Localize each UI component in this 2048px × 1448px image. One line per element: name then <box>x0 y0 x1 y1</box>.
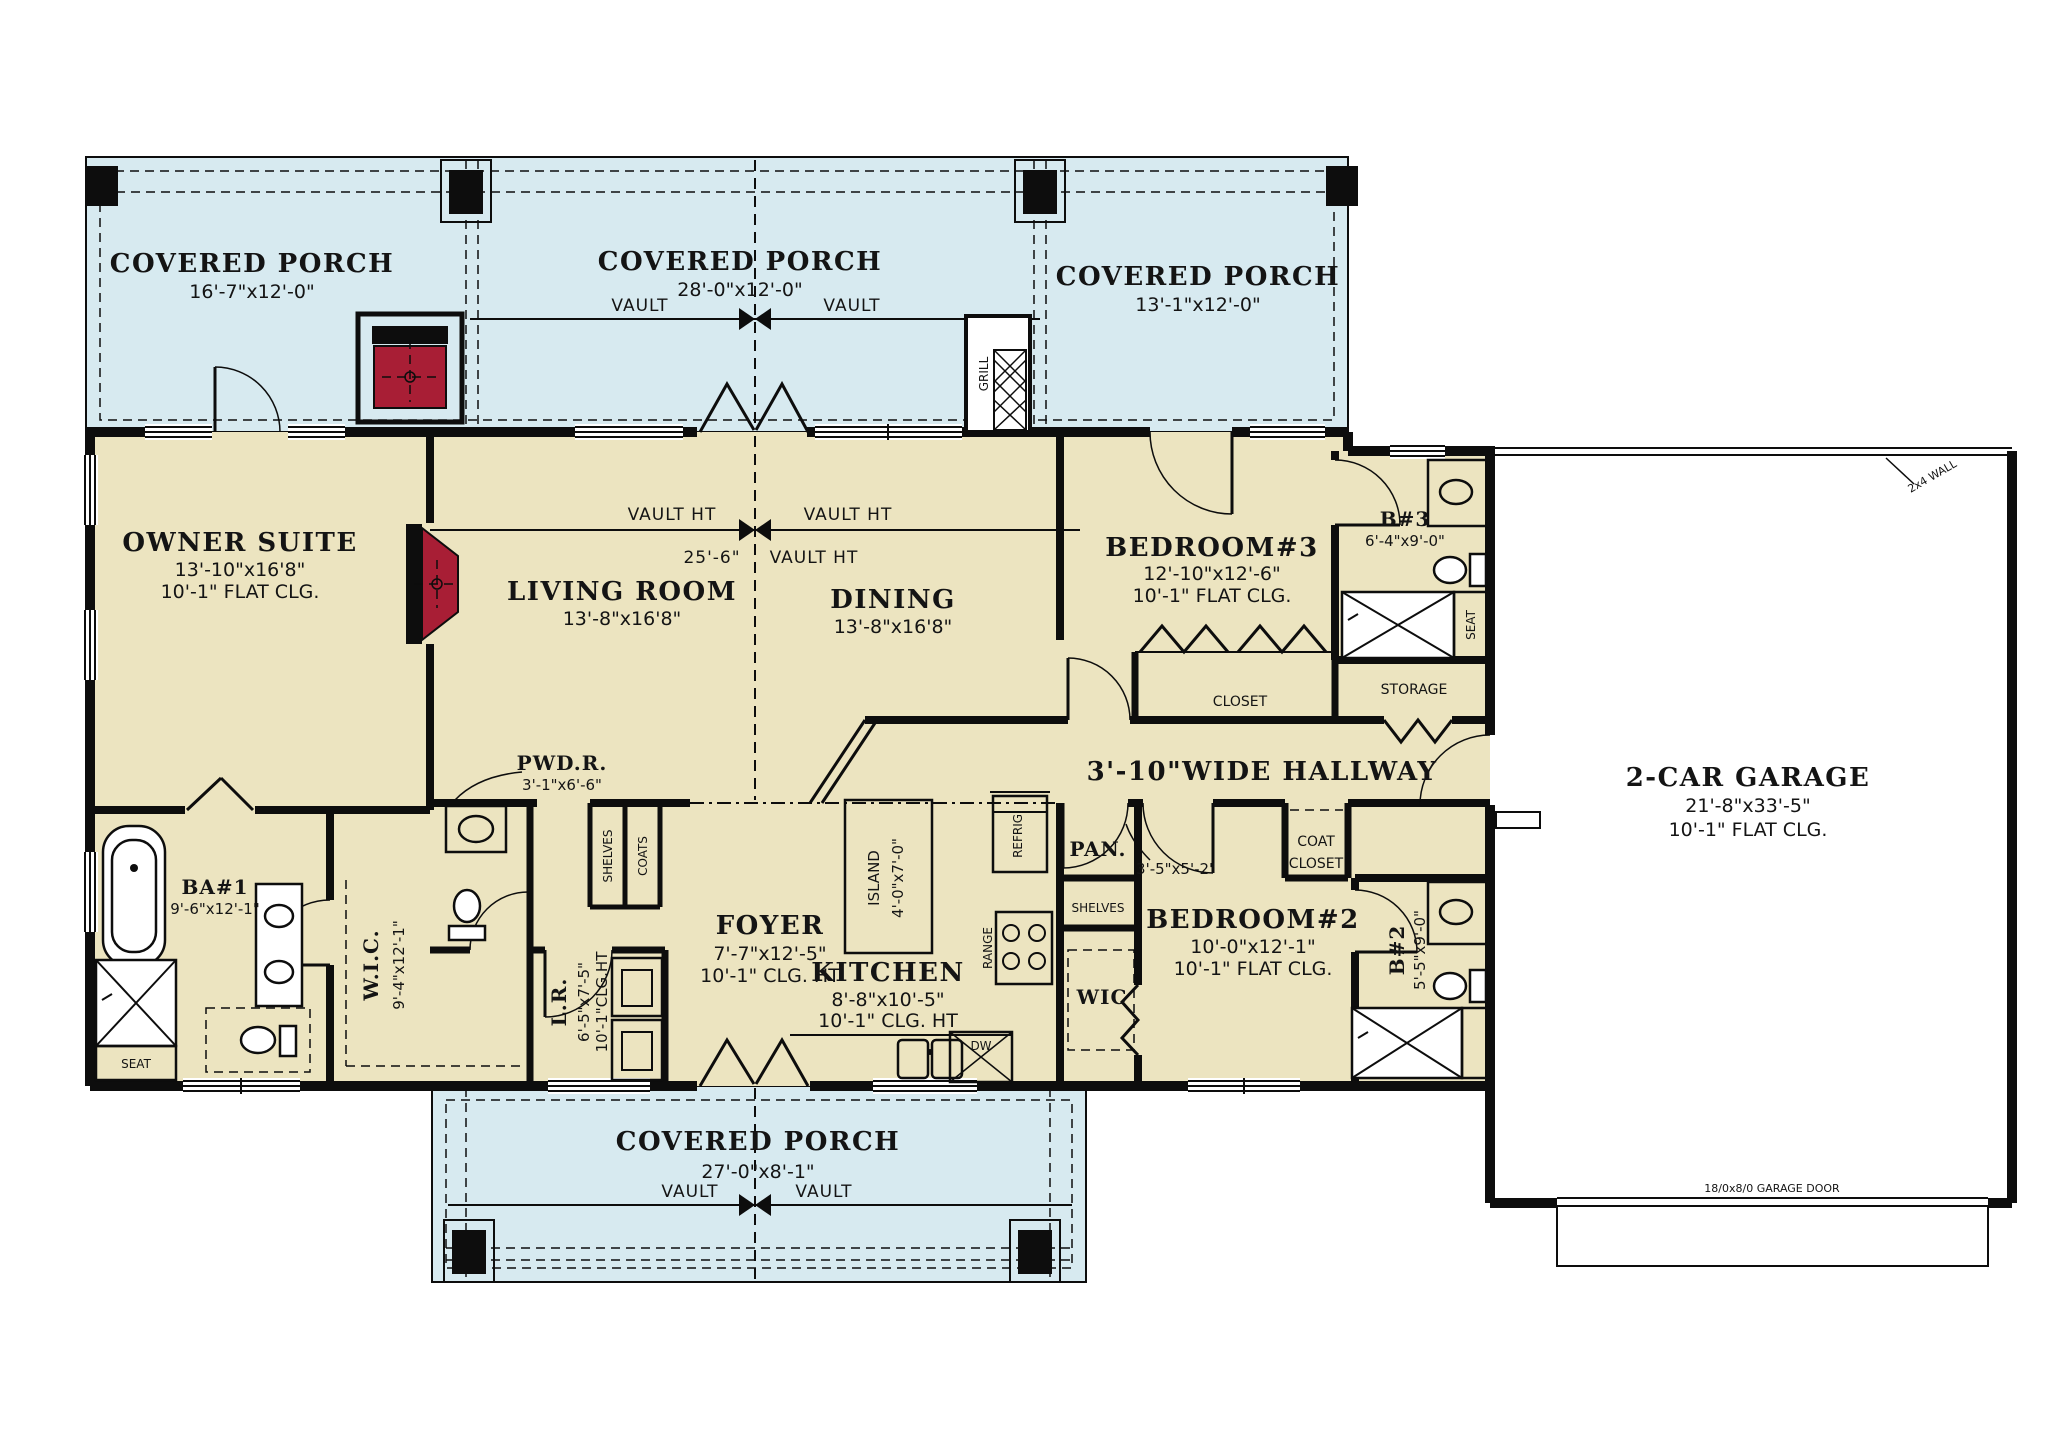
ridge-height-label: 25'-6" <box>683 548 740 568</box>
closet-label: CLOSET <box>1213 694 1268 710</box>
coat-closet-line2: CLOSET <box>1289 856 1344 872</box>
bath2-dims: 5'-5"x9'-0" <box>1411 910 1429 990</box>
powder-title: PWD.R. <box>517 751 608 775</box>
fireplace-porch <box>358 314 462 422</box>
porch-left-title: COVERED PORCH <box>110 249 394 279</box>
porch-right-title: COVERED PORCH <box>1056 262 1340 292</box>
porch-bottom-vault-left: VAULT <box>661 1182 718 1202</box>
window-west-1 <box>82 455 98 525</box>
island-title: ISLAND <box>865 850 883 906</box>
owner-suite-ceiling: 10'-1" FLAT CLG. <box>161 581 320 603</box>
porch-middle-dims: 28'-0"x12'-0" <box>677 279 802 301</box>
coat-closet-line1: COAT <box>1297 834 1335 850</box>
window-west-tub <box>82 852 98 932</box>
porch-bottom-dims: 27'-0"x8'-1" <box>701 1161 814 1183</box>
wic2-dims: 3'-5"x5'-2" <box>1136 860 1216 878</box>
window-front-owner-2 <box>288 424 345 440</box>
bedroom3-ceiling: 10'-1" FLAT CLG. <box>1133 585 1292 607</box>
window-front-living <box>575 424 683 440</box>
kitchen-ceiling: 10'-1" CLG. HT <box>818 1010 958 1032</box>
foyer-dims: 7'-7"x12'-5" <box>713 943 826 965</box>
vault-ht-right: VAULT HT <box>804 505 893 525</box>
window-bath3 <box>1390 443 1445 459</box>
ridge-vault-ht-label: VAULT HT <box>770 548 859 568</box>
refrigerator-label: REFRIG. <box>1011 810 1025 858</box>
bath3-seat-label: SEAT <box>1464 609 1478 639</box>
coats-closet-label: COATS <box>636 836 650 876</box>
owner-suite-title: OWNER SUITE <box>122 528 357 558</box>
porch-middle-vault-left: VAULT <box>611 296 668 316</box>
bedroom2-title: BEDROOM#2 <box>1146 905 1359 935</box>
laundry-title: L.R. <box>547 978 571 1027</box>
porch-right-dims: 13'-1"x12'-0" <box>1135 294 1260 316</box>
window-south-kitchen <box>873 1078 977 1094</box>
vault-ht-left: VAULT HT <box>628 505 717 525</box>
garage-dims: 21'-8"x33'-5" <box>1685 795 1810 817</box>
shelves-kitchen-label: SHELVES <box>1072 901 1125 915</box>
porch-middle-vault-right: VAULT <box>823 296 880 316</box>
window-front-dining <box>815 424 962 440</box>
bedroom2-ceiling: 10'-1" FLAT CLG. <box>1174 958 1333 980</box>
hallway-label: 3'-10"WIDE HALLWAY <box>1087 757 1438 787</box>
wic-owner-dims: 9'-4"x12'-1" <box>390 920 408 1009</box>
window-south-bath1 <box>183 1078 300 1094</box>
garage-title: 2-CAR GARAGE <box>1626 763 1871 793</box>
range-label: RANGE <box>981 927 995 969</box>
garage-door-label: 18/0x8/0 GARAGE DOOR <box>1704 1182 1840 1195</box>
living-room-title: LIVING ROOM <box>507 577 737 607</box>
bath3-dims: 6'-4"x9'-0" <box>1365 532 1445 550</box>
wic-owner-title: W.I.C. <box>359 929 383 1001</box>
porch-middle-title: COVERED PORCH <box>598 247 882 277</box>
powder-dims: 3'-1"x6'-6" <box>522 776 602 794</box>
dining-title: DINING <box>830 585 956 615</box>
dishwasher-label: DW <box>970 1039 991 1053</box>
storage-label: STORAGE <box>1381 682 1448 698</box>
laundry-dims: 6'-5"x7'-5" <box>575 962 593 1042</box>
dining-dims: 13'-8"x16'8" <box>834 616 953 638</box>
foyer-title: FOYER <box>716 911 825 941</box>
bath3-title: B#3 <box>1380 507 1431 531</box>
bath1-dims: 9'-6"x12'-1" <box>170 900 259 918</box>
bedroom2-dims: 10'-0"x12'-1" <box>1190 936 1315 958</box>
grill-label: GRILL <box>977 356 991 391</box>
window-front-bedroom3 <box>1250 424 1325 440</box>
window-front-owner-1 <box>145 424 212 440</box>
island-dims: 4'-0"x7'-0" <box>889 838 907 918</box>
bedroom3-title: BEDROOM#3 <box>1105 533 1318 563</box>
porch-bottom-title: COVERED PORCH <box>616 1127 900 1157</box>
laundry-ceiling: 10'-1"CLG.HT <box>593 951 611 1053</box>
living-room-dims: 13'-8"x16'8" <box>563 608 682 630</box>
window-west-2 <box>82 610 98 680</box>
porch-left-dims: 16'-7"x12'-0" <box>189 281 314 303</box>
bath2-title: B#2 <box>1385 925 1409 976</box>
grill-niche: GRILL <box>966 316 1030 432</box>
floor-plan-drawing: GRILL SEAT DW SEAT <box>0 0 2048 1448</box>
pantry-label: PAN. <box>1069 837 1126 861</box>
bedroom3-dims: 12'-10"x12'-6" <box>1143 563 1281 585</box>
floor-plan-page: GRILL SEAT DW SEAT <box>0 0 2048 1448</box>
kitchen-title: KITCHEN <box>811 958 964 988</box>
window-south-bedroom2 <box>1188 1078 1300 1094</box>
bath1-title: BA#1 <box>181 875 248 899</box>
kitchen-dims: 8'-8"x10'-5" <box>831 989 944 1011</box>
owner-suite-dims: 13'-10"x16'8" <box>175 559 306 581</box>
garage-ceiling: 10'-1" FLAT CLG. <box>1669 819 1828 841</box>
shelves-closet-label: SHELVES <box>601 830 615 883</box>
wic2-label: WIC <box>1076 985 1128 1009</box>
bath1-seat-label: SEAT <box>121 1057 151 1071</box>
porch-bottom-vault-right: VAULT <box>795 1182 852 1202</box>
